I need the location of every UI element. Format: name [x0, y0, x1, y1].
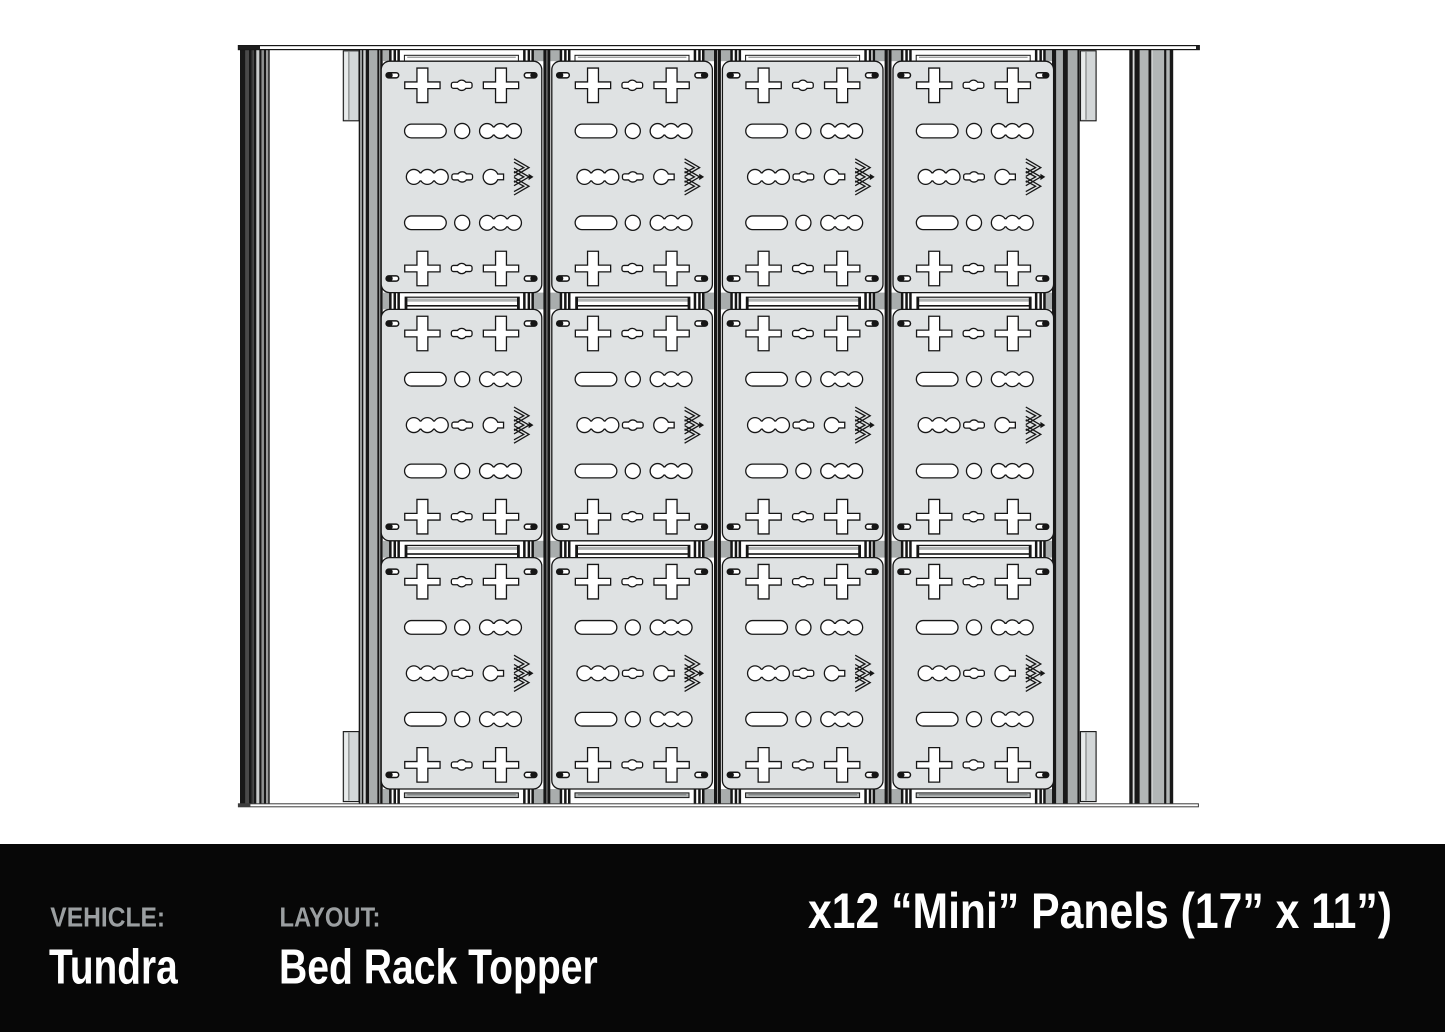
svg-text:LAYOUT:: LAYOUT:: [280, 902, 381, 933]
svg-text:VEHICLE:: VEHICLE:: [50, 902, 165, 933]
svg-text:Tundra: Tundra: [49, 941, 178, 995]
svg-text:Bed Rack Topper: Bed Rack Topper: [279, 941, 598, 995]
svg-text:x12 “Mini” Panels (17” x 11”): x12 “Mini” Panels (17” x 11”): [808, 883, 1392, 939]
